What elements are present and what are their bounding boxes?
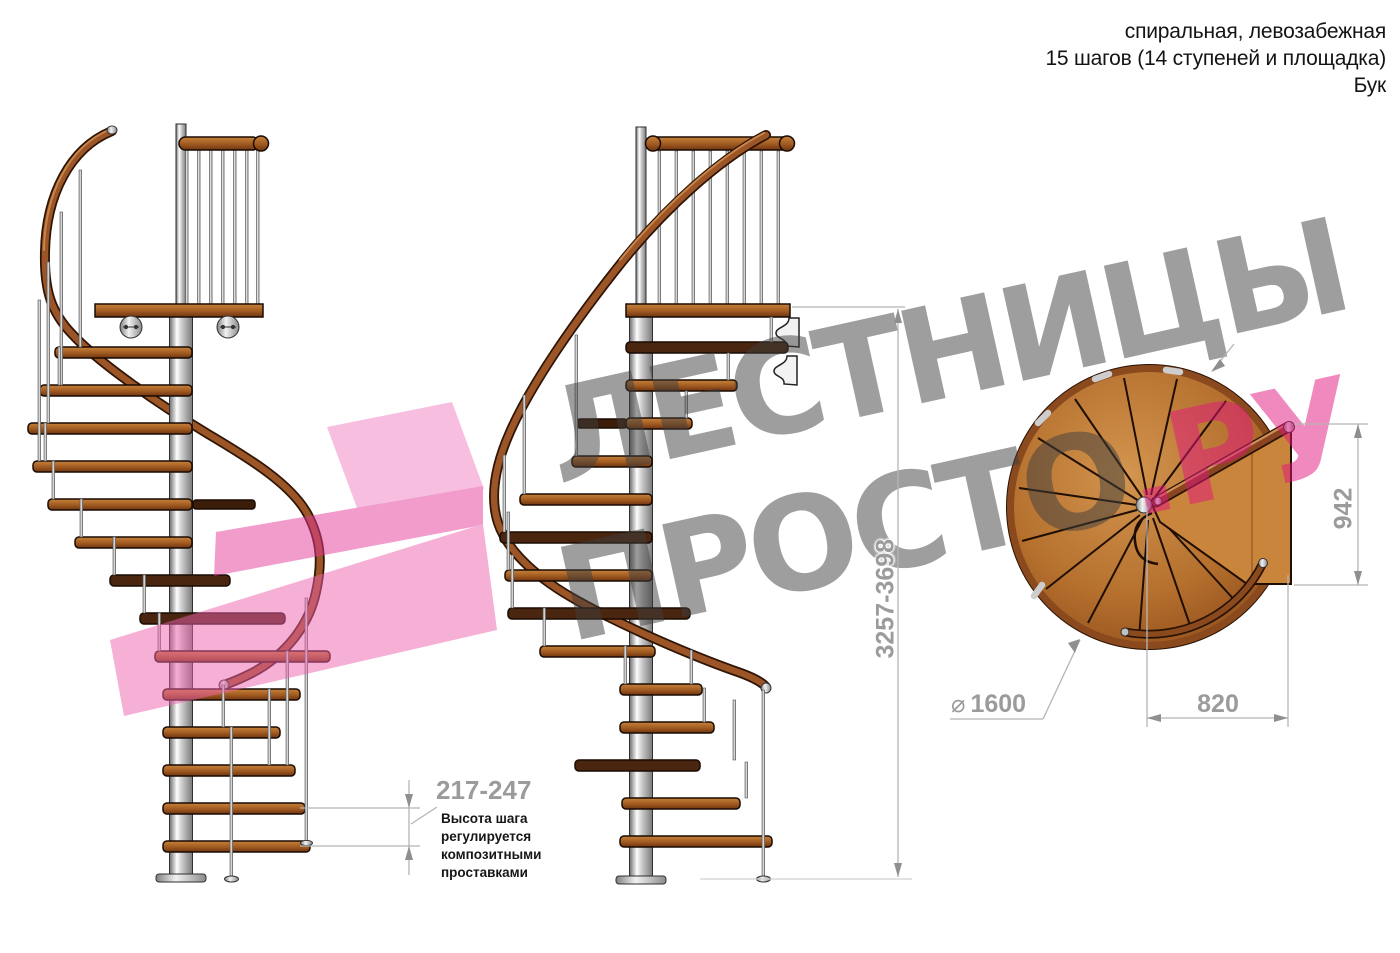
left-landing <box>95 304 263 317</box>
title-material: Бук <box>1045 72 1386 99</box>
left-pole-upper <box>176 124 186 310</box>
title-steps: 15 шагов (14 ступеней и площадка) <box>1045 45 1386 72</box>
middle-landing <box>626 304 790 317</box>
watermark-domain-suffix: .РУ <box>1109 349 1366 547</box>
left-landing-railing <box>179 136 269 306</box>
dimension-lines <box>0 0 1400 953</box>
left-pole <box>170 305 193 878</box>
plan-center-pole <box>1136 497 1152 513</box>
left-handrail <box>44 126 320 690</box>
watermark: ЛЕСТНИЦЫ ПРОСТО.РУ <box>0 0 1400 953</box>
middle-steps <box>500 342 788 847</box>
watermark-text-line2: ПРОСТО.РУ <box>546 359 1364 661</box>
watermark-arrow-logo <box>0 0 1400 953</box>
watermark-text-line1: ЛЕСТНИЦЫ <box>534 200 1357 503</box>
title-type: спиральная, левозабежная <box>1045 18 1386 45</box>
middle-staircase-side-view <box>494 127 799 884</box>
middle-handrail <box>494 133 771 693</box>
dimension-total-height: 3257-3698 <box>872 541 901 659</box>
flange-connectors <box>120 316 239 338</box>
plan-entry-railing <box>1125 563 1263 634</box>
middle-landing-railing <box>646 136 795 306</box>
plan-step-lines <box>1019 378 1238 638</box>
middle-pole <box>630 305 653 880</box>
drawing-title-block: спиральная, левозабежная 15 шагов (14 ст… <box>1045 18 1386 99</box>
left-pole-base <box>156 874 206 882</box>
staircase-drawing <box>0 0 1400 953</box>
plan-landing <box>1153 425 1291 584</box>
left-balusters <box>38 170 313 882</box>
dimension-landing-height: 942 <box>1330 483 1359 535</box>
wall-bracket <box>774 356 797 385</box>
step-height-note: Высота шага регулируется композитными пр… <box>441 810 541 882</box>
dimension-diameter: ⌀1600 <box>951 690 1026 719</box>
wall-bracket <box>776 318 799 347</box>
left-steps <box>28 347 330 852</box>
rim-connectors <box>1034 370 1180 596</box>
plan-handrail <box>1154 422 1295 506</box>
left-staircase-side-view <box>28 124 330 882</box>
middle-pole-base <box>616 876 666 884</box>
dimension-landing-width: 820 <box>1192 690 1244 719</box>
middle-balusters <box>503 317 773 882</box>
diameter-icon: ⌀ <box>951 690 970 718</box>
technical-drawing-page: ЛЕСТНИЦЫ ПРОСТО.РУ <box>0 0 1400 953</box>
staircase-plan-view <box>1007 365 1295 649</box>
middle-pole-upper <box>636 127 646 307</box>
dimension-step-height: 217-247 <box>436 775 531 806</box>
